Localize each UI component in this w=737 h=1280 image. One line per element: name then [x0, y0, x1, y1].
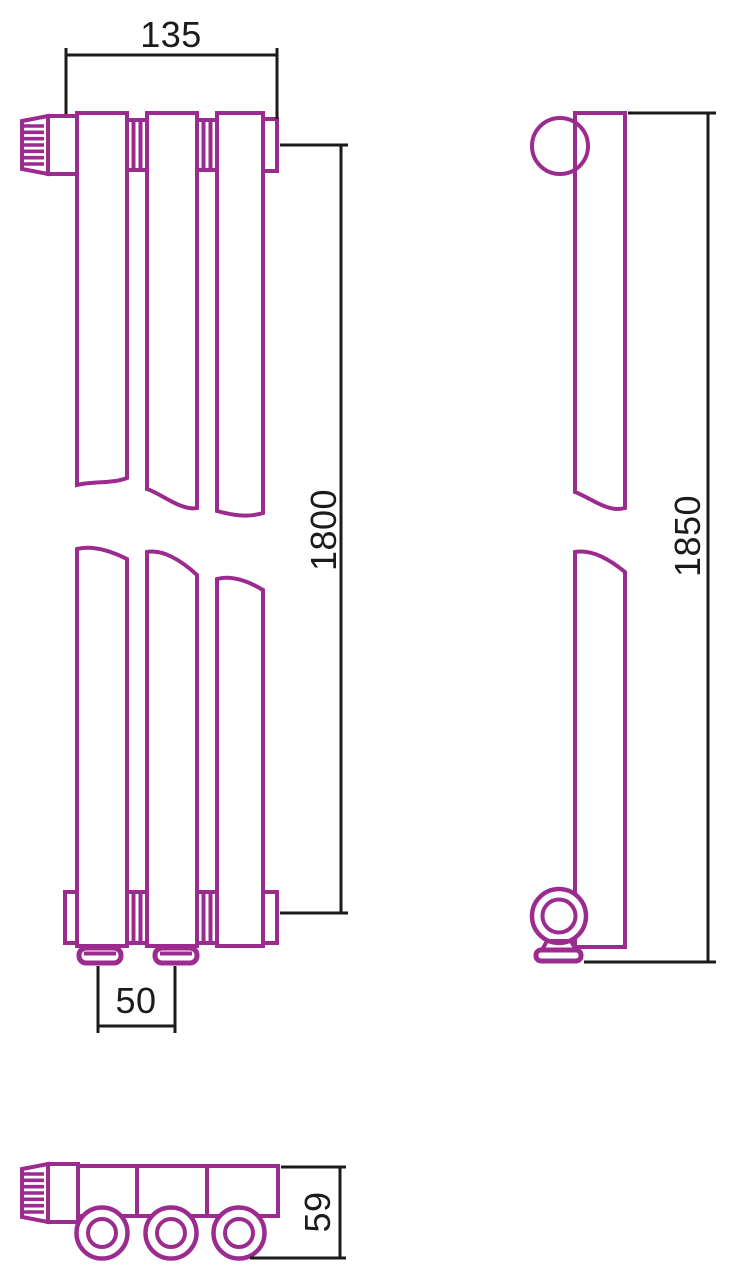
- top-tube-ring-2: [146, 1208, 197, 1259]
- foot-base: [536, 950, 581, 961]
- front-view: [22, 113, 277, 963]
- bottom-pitch-value: 50: [115, 980, 156, 1021]
- top-view: [22, 1164, 278, 1259]
- side-height-value: 1850: [667, 495, 708, 577]
- top-valve-knob: [22, 1164, 78, 1222]
- tube-2-upper: [147, 113, 197, 508]
- sleeve-top-2: [197, 120, 217, 170]
- valve-knurl-ridges: [22, 126, 44, 164]
- top-valve-knurl-ridges: [22, 1174, 44, 1212]
- end-cap-bottom-left: [65, 892, 77, 943]
- depth-value: 59: [297, 1191, 338, 1232]
- dimension-front-width: 135: [66, 14, 277, 119]
- side-tube-lower: [575, 551, 625, 947]
- tube-3-lower: [217, 578, 263, 946]
- drawing-canvas: 135 1800 50 1850 59: [0, 0, 737, 1280]
- valve-knob: [22, 116, 77, 174]
- radiator-dimension-drawing: 135 1800 50 1850 59: [0, 0, 737, 1280]
- tube-2-lower: [147, 552, 197, 946]
- side-view: [532, 113, 625, 961]
- dimension-depth: 59: [250, 1167, 346, 1258]
- dimension-side-height: 1850: [584, 113, 716, 962]
- foot-ring-outer: [532, 889, 586, 943]
- bottom-fitting-1: [79, 948, 121, 963]
- sleeve-bottom-2: [197, 892, 217, 943]
- top-tube-ring-3: [214, 1208, 265, 1259]
- sleeve-top-1: [127, 120, 147, 170]
- front-width-value: 135: [140, 14, 202, 55]
- top-collector: [127, 119, 277, 171]
- dimension-bottom-pitch: 50: [98, 966, 175, 1033]
- dimension-front-height: 1800: [280, 145, 348, 913]
- bottom-fitting-2: [155, 948, 197, 963]
- side-mount-foot: [532, 889, 586, 961]
- end-cap-bottom-right: [263, 892, 277, 943]
- end-cap-top-right: [263, 119, 277, 171]
- tube-1-lower: [77, 548, 127, 946]
- sleeve-bottom-1: [127, 892, 147, 943]
- tube-3-upper: [217, 113, 263, 516]
- valve-body: [48, 116, 77, 174]
- top-valve-body: [48, 1164, 78, 1222]
- top-tube-ring-1: [77, 1208, 128, 1259]
- side-tube-upper: [575, 113, 625, 509]
- side-valve-knob: [532, 118, 588, 174]
- front-height-value: 1800: [303, 489, 344, 571]
- tube-1-upper: [77, 113, 127, 485]
- bottom-collector: [65, 892, 277, 943]
